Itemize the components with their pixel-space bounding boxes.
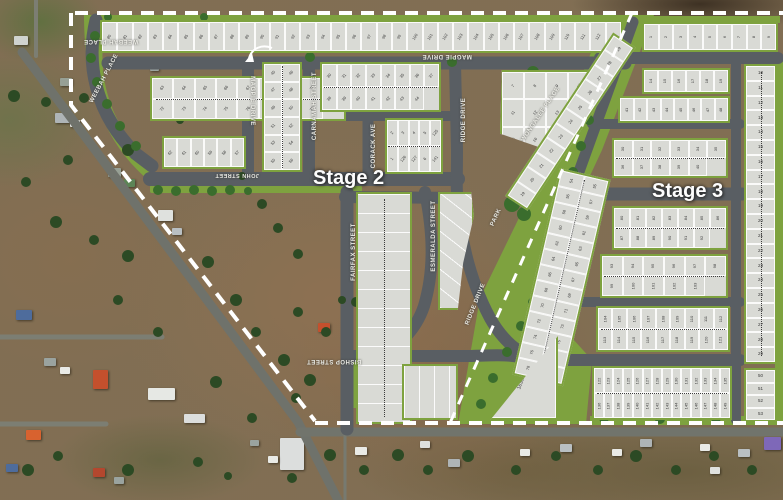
lot-91: 91: [678, 228, 694, 248]
lot-38: 38: [322, 87, 337, 110]
lot-37: 37: [424, 64, 439, 87]
lot-94: 94: [316, 22, 331, 51]
lot-15: 15: [658, 70, 672, 92]
lot-block-s3-mid-upper: 80818283848586878889909192: [612, 206, 728, 250]
lot-123: 123: [604, 368, 614, 393]
lot-50: 50: [746, 370, 775, 383]
lot-block-bishop-east: [402, 364, 458, 420]
lot-54: 54: [282, 135, 300, 153]
lot-128: 128: [652, 368, 662, 393]
lot-57: 57: [231, 138, 244, 167]
lot-86: 86: [194, 22, 209, 51]
lot-5: 5: [419, 120, 430, 146]
lot-8: 8: [747, 24, 762, 50]
lot-11: 11: [502, 99, 524, 126]
lot-82: 82: [646, 208, 662, 228]
lot-15: 15: [502, 127, 524, 154]
lot-104: 104: [598, 308, 612, 329]
lot-80: 80: [614, 208, 630, 228]
lot-60: 60: [191, 138, 204, 167]
lot-63: 63: [152, 78, 173, 99]
lot-98: 98: [377, 22, 392, 51]
lot-93: 93: [602, 256, 623, 276]
lot-100: 100: [407, 22, 422, 51]
lot-135: 135: [720, 368, 730, 393]
lot-141: 141: [430, 146, 441, 172]
lot-53: 53: [264, 135, 282, 153]
lot-boundary-dotted-line: [388, 146, 440, 147]
lot-106: 106: [627, 308, 641, 329]
lot-1: 1: [387, 146, 398, 172]
lot-47: 47: [264, 82, 282, 100]
lot-140: 140: [633, 393, 643, 418]
lot-130: 130: [672, 368, 682, 393]
lot-42: 42: [381, 87, 396, 110]
lot-89: 89: [646, 228, 662, 248]
lot-35: 35: [395, 64, 410, 87]
lot-97: 97: [361, 22, 376, 51]
lot-74: 74: [195, 99, 216, 120]
lot-124: 124: [613, 368, 623, 393]
lot-42: 42: [634, 98, 648, 121]
lot-127: 127: [643, 368, 653, 393]
lot-110: 110: [685, 308, 699, 329]
lot-103: 103: [453, 22, 468, 51]
lot-115: 115: [627, 329, 641, 350]
lot-89: 89: [239, 22, 254, 51]
lot-block-s3-row-b: 4142434445464748: [618, 96, 730, 123]
lot-111: 111: [699, 308, 713, 329]
lot-34: 34: [689, 140, 708, 158]
lot-61: 61: [177, 138, 190, 167]
lot-40: 40: [689, 158, 708, 176]
lot-97: 97: [685, 256, 706, 276]
lot-144: 144: [672, 393, 682, 418]
lot-131: 131: [681, 368, 691, 393]
lot-43: 43: [647, 98, 661, 121]
lot-92: 92: [694, 228, 710, 248]
lot-58: 58: [217, 138, 230, 167]
lot-47: 47: [701, 98, 715, 121]
lot-block-s3-mid-lower: 93949596979899100101102103: [600, 254, 728, 298]
lot-39: 39: [337, 87, 352, 110]
lot-41: 41: [620, 98, 634, 121]
lot-2: 2: [659, 24, 674, 50]
lot-32: 32: [351, 64, 366, 87]
lot-127: 127: [409, 146, 420, 172]
lot-132: 132: [691, 368, 701, 393]
lot-18: 18: [700, 70, 714, 92]
lot-122: 122: [594, 368, 604, 393]
lot-boundary-dotted-line: [601, 329, 726, 330]
lot-102: 102: [438, 22, 453, 51]
lot-boundary-dotted-line: [616, 228, 724, 229]
lot-75: 75: [216, 99, 237, 120]
lot-121: 121: [714, 329, 728, 350]
lot-46: 46: [282, 64, 300, 82]
lot-5: 5: [703, 24, 718, 50]
lot-95: 95: [643, 256, 664, 276]
lot-116: 116: [641, 329, 655, 350]
lot-87: 87: [614, 228, 630, 248]
lot-41: 41: [366, 87, 381, 110]
lot-block-carnamah-east: 303132333435363738394041424344: [320, 62, 441, 112]
lot-107: 107: [641, 308, 655, 329]
lot-100: 100: [623, 276, 644, 296]
lot-36: 36: [614, 158, 633, 176]
lot-138: 138: [613, 393, 623, 418]
lot-90: 90: [255, 22, 270, 51]
lot-101: 101: [643, 276, 664, 296]
lot-109: 109: [670, 308, 684, 329]
lot-84: 84: [678, 208, 694, 228]
lot-46: 46: [688, 98, 702, 121]
lot-blocks-layer: 8081828384858687888990919293949596979899…: [0, 0, 783, 500]
lot-boundary-dotted-line: [384, 199, 385, 418]
lot-108: 108: [529, 22, 544, 51]
lot-149: 149: [720, 393, 730, 418]
lot-65: 65: [195, 78, 216, 99]
lot-40: 40: [351, 87, 366, 110]
lot-73: 73: [173, 99, 194, 120]
lot-59: 59: [204, 138, 217, 167]
lot-72: 72: [152, 99, 173, 120]
lot-block-s3-south-lower: 1221231241251261271281291301311321331341…: [592, 366, 732, 420]
lot-142: 142: [652, 393, 662, 418]
lot-7: 7: [502, 72, 524, 99]
lot-56: 56: [282, 152, 300, 170]
lot-block-weebah-south: 626160595857: [162, 136, 246, 169]
lot-83: 83: [148, 22, 163, 51]
lot-31: 31: [633, 140, 652, 158]
lot-88: 88: [224, 22, 239, 51]
lot-14: 14: [644, 70, 658, 92]
lot-45: 45: [264, 64, 282, 82]
lot-98: 98: [705, 256, 726, 276]
lot-119: 119: [685, 329, 699, 350]
lot-45: 45: [674, 98, 688, 121]
lot-44: 44: [410, 87, 425, 110]
lot-49: 49: [264, 99, 282, 117]
lot-3: 3: [673, 24, 688, 50]
lot-8: 8: [524, 72, 546, 99]
lot-43: 43: [395, 87, 410, 110]
lot-137: 137: [604, 393, 614, 418]
lot-126: 126: [398, 146, 409, 172]
lot-104: 104: [468, 22, 483, 51]
lot-113: 113: [598, 329, 612, 350]
lot-136: 136: [594, 393, 604, 418]
lot-38: 38: [651, 158, 670, 176]
lot-111: 111: [575, 22, 590, 51]
lot-4: 4: [409, 120, 420, 146]
lot-30: 30: [322, 64, 337, 87]
lot-boundary-dotted-line: [761, 72, 762, 356]
lot-114: 114: [612, 329, 626, 350]
aerial-masterplan-image: 8081828384858687888990919293949596979899…: [0, 0, 783, 500]
lot-90: 90: [662, 228, 678, 248]
lot-35: 35: [707, 140, 726, 158]
lot-boundary-dotted-line: [156, 99, 340, 100]
lot-44: 44: [661, 98, 675, 121]
lot-2: 2: [387, 120, 398, 146]
lot-30: 30: [614, 140, 633, 158]
lot-108: 108: [656, 308, 670, 329]
lot-6: 6: [717, 24, 732, 50]
lot-31: 31: [337, 64, 352, 87]
lot-102: 102: [664, 276, 685, 296]
lot-133: 133: [701, 368, 711, 393]
lot-3: 3: [398, 120, 409, 146]
lot-148: 148: [711, 393, 721, 418]
lot-33: 33: [670, 140, 689, 158]
lot-96: 96: [346, 22, 361, 51]
lot-block-s3-north-row: 123456789: [642, 22, 778, 52]
lot-87: 87: [209, 22, 224, 51]
lot-125: 125: [623, 368, 633, 393]
lot-99: 99: [392, 22, 407, 51]
lot-block-s3-east-col-lower: 50515253: [744, 368, 777, 422]
lot-96: 96: [664, 256, 685, 276]
lot-147: 147: [701, 393, 711, 418]
lot-block-weebah-inner: 6364656667686970717273747576777879: [150, 76, 346, 121]
lot-82: 82: [133, 22, 148, 51]
lot-4: 4: [688, 24, 703, 50]
lot-81: 81: [117, 22, 132, 51]
lot-109: 109: [545, 22, 560, 51]
lot-52: 52: [282, 117, 300, 135]
lot-88: 88: [630, 228, 646, 248]
lot-boundary-dotted-line: [324, 87, 436, 88]
lot-92: 92: [285, 22, 300, 51]
lot-17: 17: [686, 70, 700, 92]
lot-95: 95: [331, 22, 346, 51]
lot-85: 85: [694, 208, 710, 228]
lot-134: 134: [711, 368, 721, 393]
lot-32: 32: [651, 140, 670, 158]
lot-48: 48: [715, 98, 729, 121]
lot-33: 33: [366, 64, 381, 87]
lot-37: 37: [633, 158, 652, 176]
lot-boundary-dotted-line: [616, 158, 724, 159]
lot-52: 52: [746, 395, 775, 408]
lot-80: 80: [102, 22, 117, 51]
lot-110: 110: [560, 22, 575, 51]
lot-9: 9: [761, 24, 776, 50]
lot-81: 81: [630, 208, 646, 228]
lot-1: 1: [644, 24, 659, 50]
lot-16: 16: [672, 70, 686, 92]
lot-106: 106: [499, 22, 514, 51]
lot-120: 120: [699, 329, 713, 350]
lot-91: 91: [270, 22, 285, 51]
lot-55: 55: [264, 152, 282, 170]
lot-boundary-dotted-line: [282, 66, 283, 168]
lot-66: 66: [216, 78, 237, 99]
lot-93: 93: [300, 22, 315, 51]
lot-51: 51: [746, 383, 775, 396]
lot-86: 86: [710, 208, 726, 228]
lot-84: 84: [163, 22, 178, 51]
lot-126: 126: [633, 368, 643, 393]
lot-94: 94: [623, 256, 644, 276]
lot-53: 53: [746, 408, 775, 421]
lot-6: 6: [419, 146, 430, 172]
lot-146: 146: [691, 393, 701, 418]
lot-141: 141: [643, 393, 653, 418]
lot-51: 51: [264, 117, 282, 135]
lot-105: 105: [612, 308, 626, 329]
lot-118: 118: [670, 329, 684, 350]
lot-36: 36: [410, 64, 425, 87]
lot-64: 64: [173, 78, 194, 99]
lot-105: 105: [484, 22, 499, 51]
lot-67: 67: [237, 78, 258, 99]
lot-139: 139: [623, 393, 633, 418]
lot-39: 39: [670, 158, 689, 176]
lot-block-s3-row-a: 141516171819: [642, 68, 730, 94]
lot-125: 125: [430, 120, 441, 146]
lot-9: 9: [546, 72, 568, 99]
lot-101: 101: [423, 22, 438, 51]
lot-50: 50: [282, 99, 300, 117]
lot-block-s3-east-col: 1011121314151617181920212223242526272829: [744, 64, 777, 364]
lot-7: 7: [732, 24, 747, 50]
lot-block-s3-south-upper: 1041051061071081091101111121131141151161…: [596, 306, 730, 352]
lot-76: 76: [237, 99, 258, 120]
lot-129: 129: [662, 368, 672, 393]
lot-83: 83: [662, 208, 678, 228]
lot-12: 12: [524, 99, 546, 126]
lot-62: 62: [164, 138, 177, 167]
lot-block-corack-east: 234512511261276141: [385, 118, 443, 174]
lot-145: 145: [681, 393, 691, 418]
lot-143: 143: [662, 393, 672, 418]
lot-117: 117: [656, 329, 670, 350]
lot-112: 112: [714, 308, 728, 329]
lot-48: 48: [282, 82, 300, 100]
lot-34: 34: [381, 64, 396, 87]
lot-block-esmeralda-east: [438, 192, 474, 310]
lot-107: 107: [514, 22, 529, 51]
lot-103: 103: [685, 276, 706, 296]
lot-boundary-dotted-line: [597, 393, 728, 394]
lot-block-carnamah-west: 454647484950515253545556: [262, 62, 302, 172]
lot-85: 85: [178, 22, 193, 51]
lot-block-s3-block-30-40: 3031323334353637383940: [612, 138, 728, 178]
lot-19: 19: [714, 70, 728, 92]
lot-boundary-dotted-line: [604, 276, 723, 277]
lot-99: 99: [602, 276, 623, 296]
lot-block-north-row: 8081828384858687888990919293949596979899…: [100, 20, 623, 53]
